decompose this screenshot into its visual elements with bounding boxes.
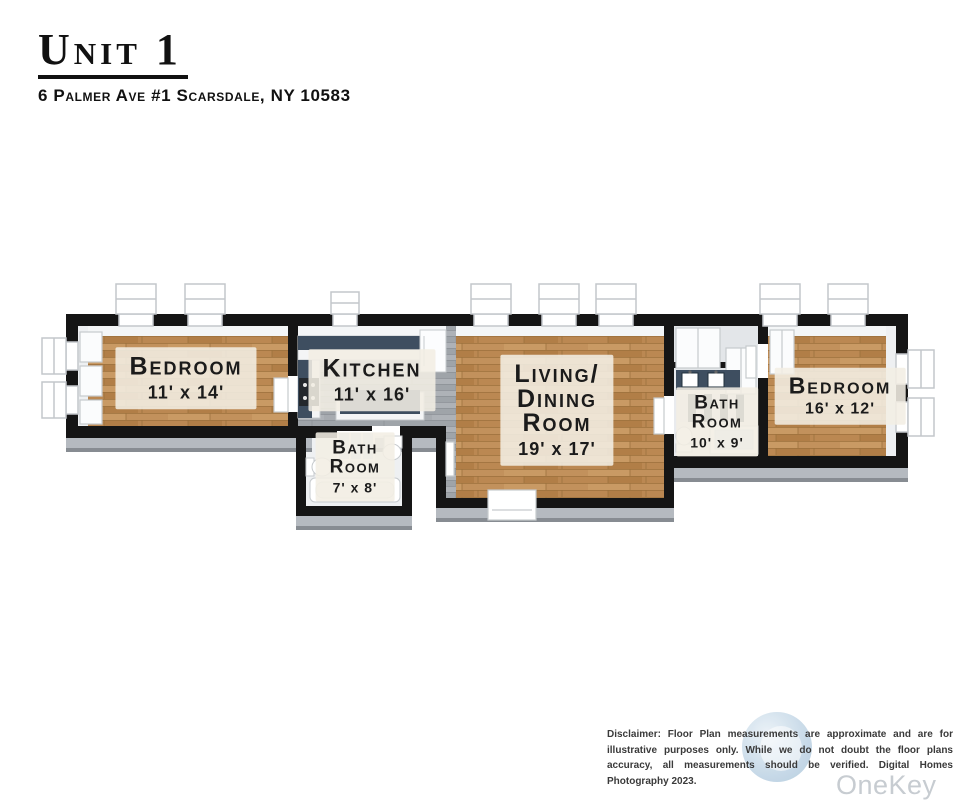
room-dimensions: 7' x 8' xyxy=(330,480,381,496)
room-label-bath-1: Bath Room 7' x 8' xyxy=(316,432,395,501)
room-name: Room xyxy=(690,413,744,432)
room-name: Bath xyxy=(330,439,381,458)
room-dimensions: 11' x 16' xyxy=(322,384,421,405)
room-dimensions: 19' x 17' xyxy=(514,438,599,459)
room-label-bedroom-2: Bedroom 16' x 12' xyxy=(775,368,906,425)
watermark-text: OneKey MLS xyxy=(836,770,978,803)
room-name: Dining xyxy=(514,386,599,411)
room-name: Kitchen xyxy=(322,356,421,381)
room-dimensions: 11' x 14' xyxy=(129,382,242,403)
room-dimensions: 16' x 12' xyxy=(789,400,892,418)
room-name: Bedroom xyxy=(129,354,242,379)
room-label-bath-2: Bath Room 10' x 9' xyxy=(676,387,758,456)
room-dimensions: 10' x 9' xyxy=(690,435,744,451)
room-name: Bath xyxy=(690,394,744,413)
room-name: Bedroom xyxy=(789,375,892,398)
room-name: Living/ xyxy=(514,362,599,387)
room-name: Room xyxy=(514,411,599,436)
room-label-living-dining: Living/ Dining Room 19' x 17' xyxy=(500,355,613,466)
room-label-bedroom-1: Bedroom 11' x 14' xyxy=(115,347,256,409)
room-label-kitchen: Kitchen 11' x 16' xyxy=(308,349,435,411)
floorplan-page: Unit 1 6 Palmer Ave #1 Scarsdale, NY 105… xyxy=(0,0,978,803)
room-name: Room xyxy=(330,458,381,477)
